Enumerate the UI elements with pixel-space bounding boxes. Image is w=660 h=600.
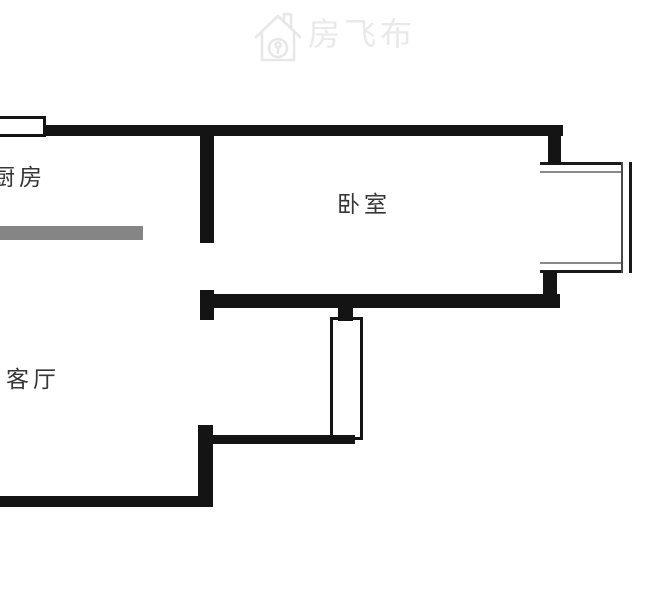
house-logo-icon [254,12,302,66]
watermark-logo: 房飞布 [254,12,416,66]
top-exterior-wall [44,125,563,136]
hall-bottom-wall [213,435,355,444]
living-room-divider-wall [198,425,213,507]
divider-wall-mid-segment [200,290,214,320]
kitchen-window [0,116,46,137]
room-label-bedroom: 卧室 [337,194,391,217]
bedroom-bottom-wall [214,294,560,308]
hall-window [330,317,363,440]
balcony-top-wall-stub [548,125,561,165]
room-label-kitchen: 厨房 [0,167,46,190]
kitchen-bedroom-divider-wall [200,127,214,243]
floorplan-canvas: 房飞布 厨房 卧室 客厅 [0,0,660,600]
living-room-bottom-wall [0,496,213,507]
watermark-brand-text: 房飞布 [308,18,416,50]
room-label-living-room: 客厅 [6,369,60,392]
kitchen-counter [0,226,143,240]
balcony-bottom-wall-stub [543,271,557,298]
hall-window-wall-stub [338,306,353,321]
balcony-window-right [621,162,632,273]
